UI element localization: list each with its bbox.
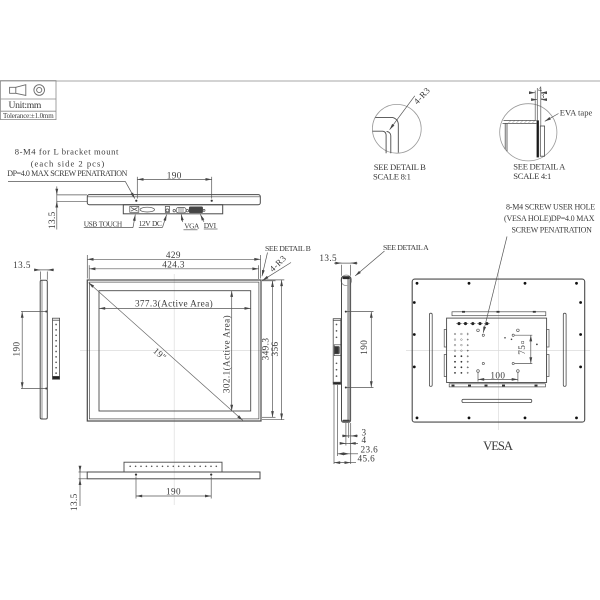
svg-text:349.3: 349.3 [260, 338, 270, 361]
svg-text:VGA: VGA [184, 221, 200, 230]
svg-text:100: 100 [490, 370, 505, 380]
svg-text:45.6: 45.6 [358, 453, 376, 463]
svg-text:356: 356 [270, 342, 280, 357]
svg-text:DVI: DVI [204, 221, 217, 230]
svg-text:Tolerance:±1.0mm: Tolerance:±1.0mm [3, 112, 54, 120]
svg-text:(each side 2 pcs): (each side 2 pcs) [31, 158, 106, 168]
svg-text:13.5: 13.5 [319, 253, 337, 263]
svg-text:SCREW PENATRATION: SCREW PENATRATION [512, 225, 593, 234]
svg-text:13.5: 13.5 [47, 211, 57, 229]
svg-text:3: 3 [540, 91, 544, 100]
svg-text:SEE DETAIL B: SEE DETAIL B [265, 244, 311, 253]
svg-text:VESA: VESA [483, 439, 513, 453]
svg-text:DP=4.0 MAX SCREW PENATRATION: DP=4.0 MAX SCREW PENATRATION [7, 169, 127, 178]
svg-text:75: 75 [517, 345, 527, 355]
svg-text:EVA tape: EVA tape [560, 107, 593, 117]
svg-text:8-M4 for L bracket mount: 8-M4 for L bracket mount [15, 147, 119, 157]
svg-text:19″: 19″ [151, 346, 168, 363]
svg-text:SEE DETAIL B: SEE DETAIL B [374, 162, 426, 172]
svg-text:429: 429 [166, 250, 181, 260]
svg-text:4-R3: 4-R3 [412, 85, 433, 106]
svg-text:13.5: 13.5 [69, 493, 79, 511]
svg-text:(VESA HOLE)DP=4.0 MAX: (VESA HOLE)DP=4.0 MAX [504, 214, 595, 223]
svg-text:SCALE 4:1: SCALE 4:1 [513, 171, 551, 181]
svg-text:8-M4 SCREW USER HOLE: 8-M4 SCREW USER HOLE [506, 202, 595, 211]
svg-text:190: 190 [167, 171, 182, 181]
svg-text:190: 190 [11, 342, 21, 357]
svg-text:12V DC: 12V DC [139, 219, 162, 228]
svg-text:377.3(Active Area): 377.3(Active Area) [135, 299, 213, 309]
svg-text:4: 4 [362, 435, 367, 445]
svg-text:SCALE 8:1: SCALE 8:1 [373, 172, 411, 182]
svg-text:Unit:mm: Unit:mm [9, 100, 42, 111]
svg-text:190: 190 [166, 486, 181, 496]
svg-text:190: 190 [359, 340, 369, 355]
svg-text:302.1(Active Area): 302.1(Active Area) [222, 315, 232, 393]
svg-text:SEE DETAIL A: SEE DETAIL A [383, 243, 429, 252]
svg-text:13.5: 13.5 [13, 260, 31, 270]
svg-text:424.3: 424.3 [162, 260, 185, 270]
svg-text:USB TOUCH: USB TOUCH [84, 219, 123, 228]
